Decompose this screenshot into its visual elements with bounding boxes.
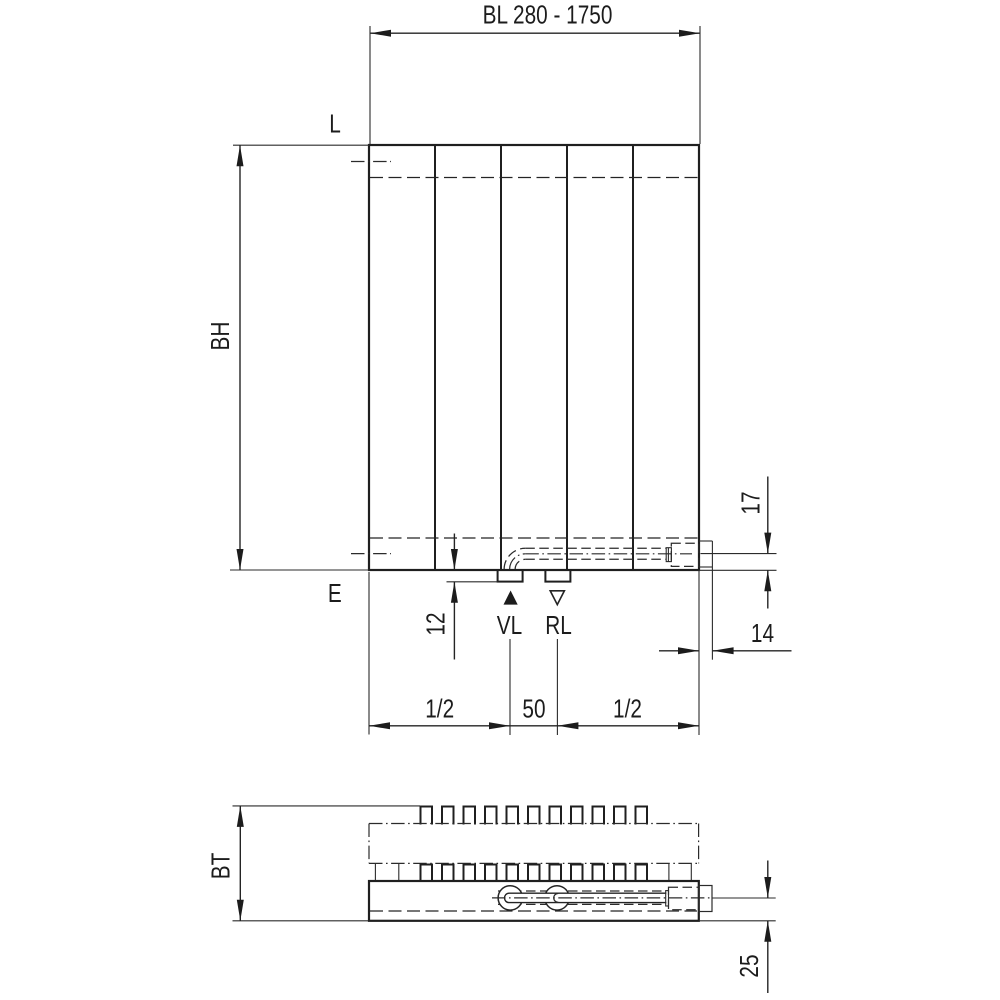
- svg-text:1/2: 1/2: [425, 694, 454, 723]
- svg-text:12: 12: [421, 612, 450, 635]
- svg-text:14: 14: [751, 619, 774, 648]
- svg-text:RL: RL: [545, 611, 572, 640]
- svg-text:50: 50: [522, 694, 545, 723]
- svg-text:1/2: 1/2: [613, 694, 642, 723]
- svg-text:VL: VL: [497, 611, 522, 640]
- svg-text:E: E: [328, 579, 342, 608]
- svg-text:BL 280 - 1750: BL 280 - 1750: [483, 0, 613, 29]
- svg-text:25: 25: [735, 954, 764, 977]
- svg-text:17: 17: [736, 491, 765, 514]
- svg-text:L: L: [329, 109, 341, 138]
- svg-text:BT: BT: [206, 853, 235, 880]
- svg-text:BH: BH: [206, 322, 235, 351]
